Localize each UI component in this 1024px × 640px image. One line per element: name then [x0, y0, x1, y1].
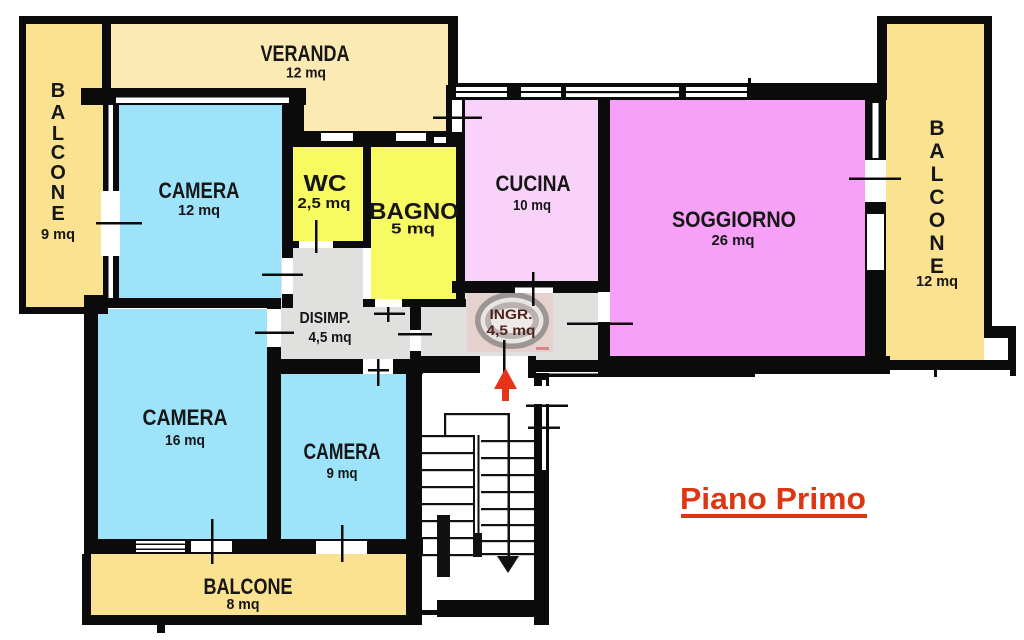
svg-text:9 mq: 9 mq — [41, 226, 75, 243]
svg-text:4,5 mq: 4,5 mq — [487, 323, 536, 338]
svg-text:WC: WC — [304, 170, 347, 196]
svg-text:O: O — [50, 162, 66, 184]
svg-text:DISIMP.: DISIMP. — [300, 310, 351, 327]
svg-text:N: N — [929, 232, 944, 255]
svg-text:16 mq: 16 mq — [165, 432, 205, 449]
svg-text:L: L — [931, 163, 944, 186]
svg-text:12 mq: 12 mq — [286, 65, 326, 82]
svg-text:INGR.: INGR. — [490, 307, 533, 322]
svg-text:A: A — [51, 102, 65, 124]
svg-text:8 mq: 8 mq — [227, 596, 260, 613]
svg-text:E: E — [51, 203, 64, 225]
svg-text:12 mq: 12 mq — [178, 202, 220, 219]
svg-text:C: C — [51, 142, 65, 164]
svg-text:12 mq: 12 mq — [916, 273, 958, 290]
svg-text:SOGGIORNO: SOGGIORNO — [672, 207, 796, 232]
svg-text:4,5 mq: 4,5 mq — [309, 329, 352, 346]
svg-text:CAMERA: CAMERA — [143, 405, 228, 430]
svg-text:5 mq: 5 mq — [391, 221, 435, 238]
svg-text:Piano Primo: Piano Primo — [680, 481, 866, 516]
svg-text:C: C — [929, 186, 944, 209]
svg-text:O: O — [929, 209, 945, 232]
svg-text:10 mq: 10 mq — [513, 197, 551, 214]
svg-text:N: N — [51, 182, 65, 204]
svg-text:CUCINA: CUCINA — [496, 171, 571, 196]
svg-text:CAMERA: CAMERA — [304, 439, 381, 464]
svg-text:CAMERA: CAMERA — [159, 178, 240, 203]
svg-text:B: B — [929, 117, 944, 140]
svg-text:A: A — [929, 140, 944, 163]
svg-text:2,5 mq: 2,5 mq — [298, 195, 351, 212]
svg-text:VERANDA: VERANDA — [261, 41, 350, 66]
svg-text:B: B — [51, 80, 65, 102]
svg-text:26 mq: 26 mq — [712, 232, 755, 249]
svg-text:9 mq: 9 mq — [327, 465, 358, 482]
